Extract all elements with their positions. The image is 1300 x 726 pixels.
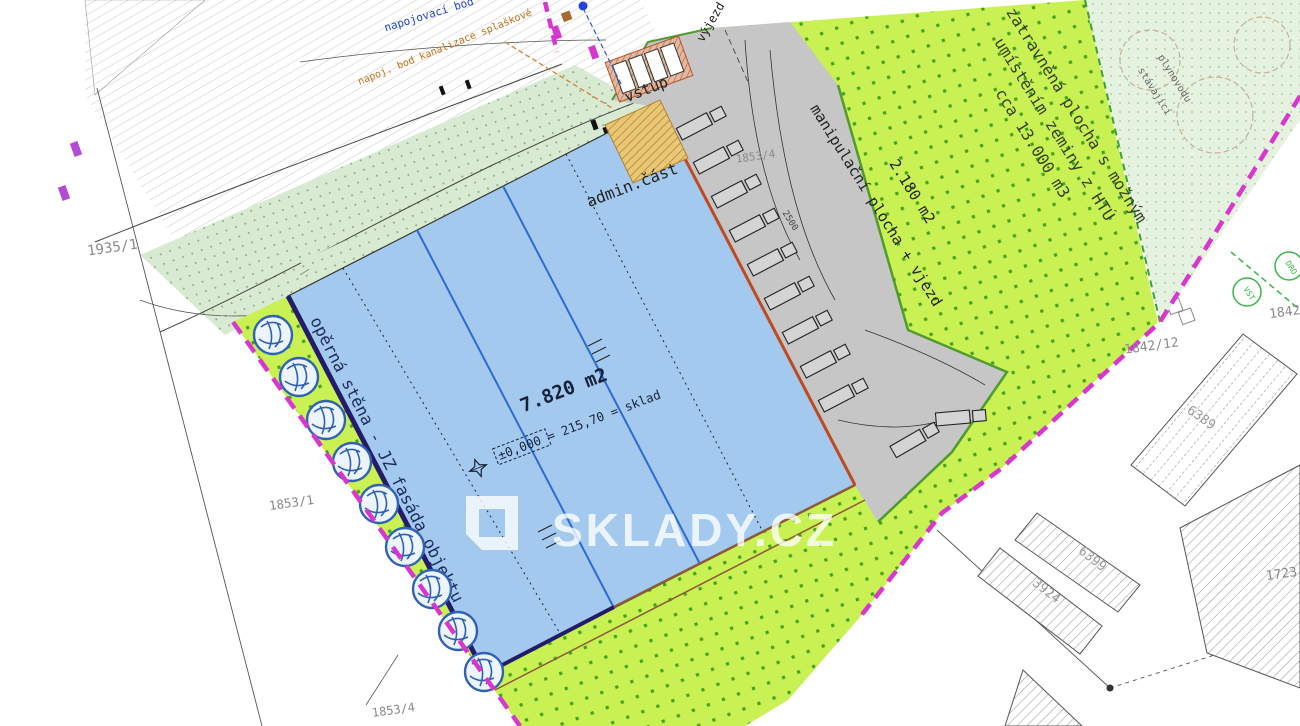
watermark-brand: SKLADY.CZ [552,504,837,556]
site-plan-canvas: plynovodu stávající 1853/4 2500 manipula… [0,0,1300,726]
water-point-icon [579,2,588,11]
site-plan-page: plynovodu stávající 1853/4 2500 manipula… [0,0,1300,726]
